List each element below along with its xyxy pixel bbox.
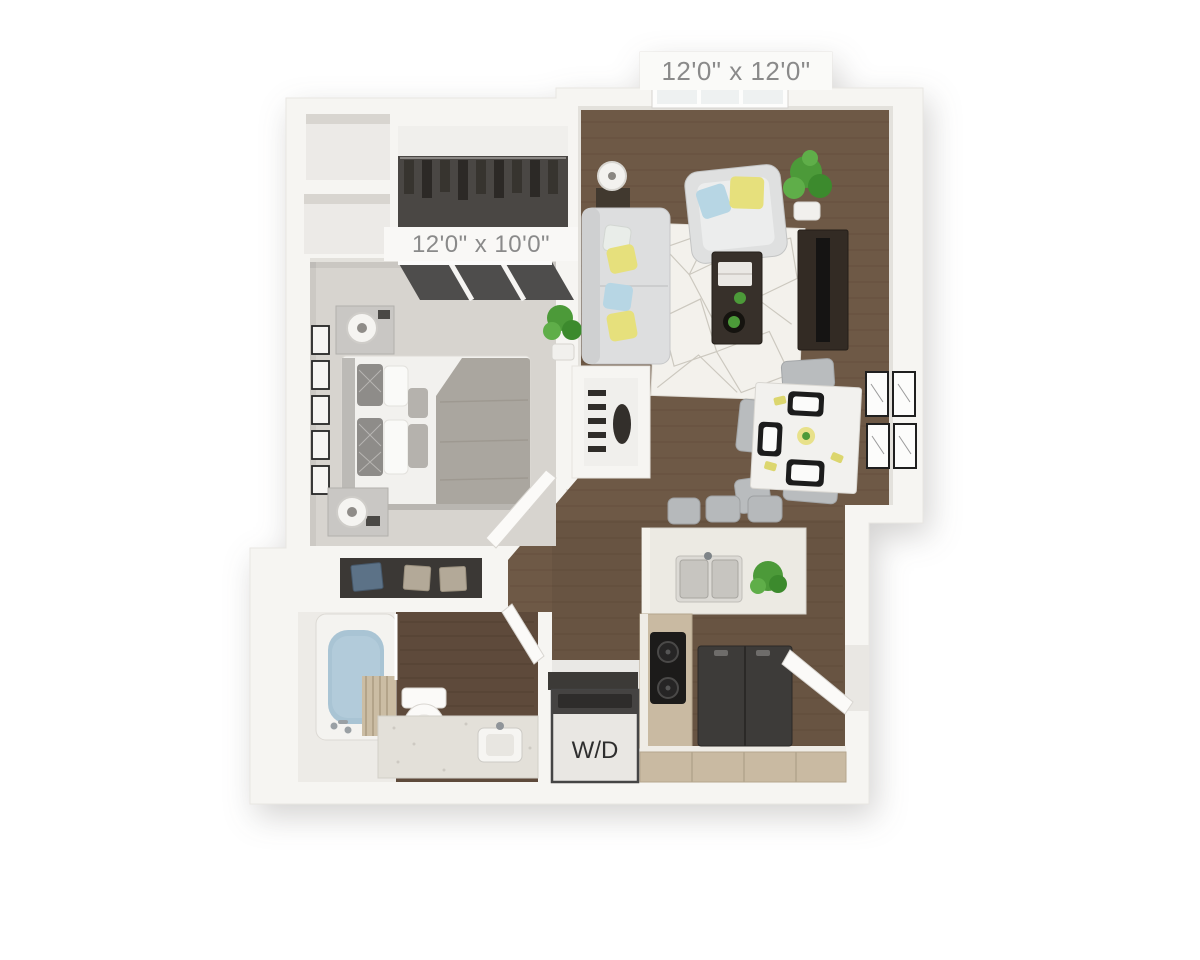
headboard [342, 358, 355, 504]
tv-console [798, 230, 848, 350]
walkin-shelf [398, 126, 568, 156]
hanging-clothes [404, 160, 558, 200]
stored-object [613, 404, 631, 444]
washer-dryer: W/D [552, 690, 638, 782]
storage-box-tan-1 [403, 565, 431, 591]
storage-box-tan-2 [439, 566, 466, 591]
pillow-patterned-1 [357, 364, 383, 406]
living-room-dimensions: 12'0" x 12'0" [661, 56, 810, 86]
storage-niche [340, 558, 482, 598]
bar-stool [748, 496, 782, 522]
kitchen-peninsula [642, 528, 806, 614]
bed [342, 356, 530, 510]
nightstand-south [328, 488, 388, 536]
cooktop [650, 632, 686, 704]
cushion-gray-2 [408, 424, 428, 468]
coffee-table [712, 252, 762, 344]
bedroom-dimensions: 12'0" x 10'0" [412, 231, 550, 258]
storage-box-blue [351, 563, 384, 592]
sofa-pillow-blue [602, 282, 633, 312]
armchair [683, 163, 788, 265]
pillow-white-2 [384, 420, 408, 474]
side-table [596, 188, 630, 210]
kitchen-south-cabinets [640, 746, 846, 782]
floor-plan-stage: W/D 12'0" x 12'0" 12'0" x 10'0" [0, 0, 1200, 960]
armchair-pillow-yellow [729, 176, 764, 209]
cushion-gray-1 [408, 388, 428, 418]
duvet [436, 358, 530, 506]
nightstand-north [336, 306, 394, 354]
walk-in-closet [398, 126, 568, 228]
floor-plan: W/D 12'0" x 12'0" 12'0" x 10'0" [0, 0, 1200, 960]
sink-faucet [704, 552, 712, 560]
kitchen-west-counter [640, 614, 692, 748]
closet-alcove-2-shadow [304, 194, 390, 204]
gallery-frames [312, 326, 329, 494]
vanity-faucet [496, 722, 504, 730]
laundry-closet: W/D [548, 672, 638, 782]
floor-lamp [598, 162, 626, 190]
dining-table [750, 382, 861, 493]
bar-stool [668, 498, 700, 524]
utility-nook [572, 366, 650, 478]
kitchen-sink [676, 552, 742, 602]
refrigerator [698, 646, 792, 746]
bar-stool [706, 496, 740, 522]
wd-label: W/D [572, 737, 619, 764]
pillow-white-1 [384, 366, 408, 406]
bar-stools [668, 496, 782, 524]
pillow-patterned-2 [357, 418, 383, 476]
sofa [582, 208, 670, 364]
table-plant-sprig [734, 292, 746, 304]
laundry-opening [548, 672, 638, 690]
sofa-pillow-yellow-2 [606, 310, 638, 342]
television [816, 238, 830, 342]
bedroom-window [398, 262, 574, 300]
vanity [378, 716, 538, 778]
closet-alcove-1-shadow [306, 114, 390, 124]
